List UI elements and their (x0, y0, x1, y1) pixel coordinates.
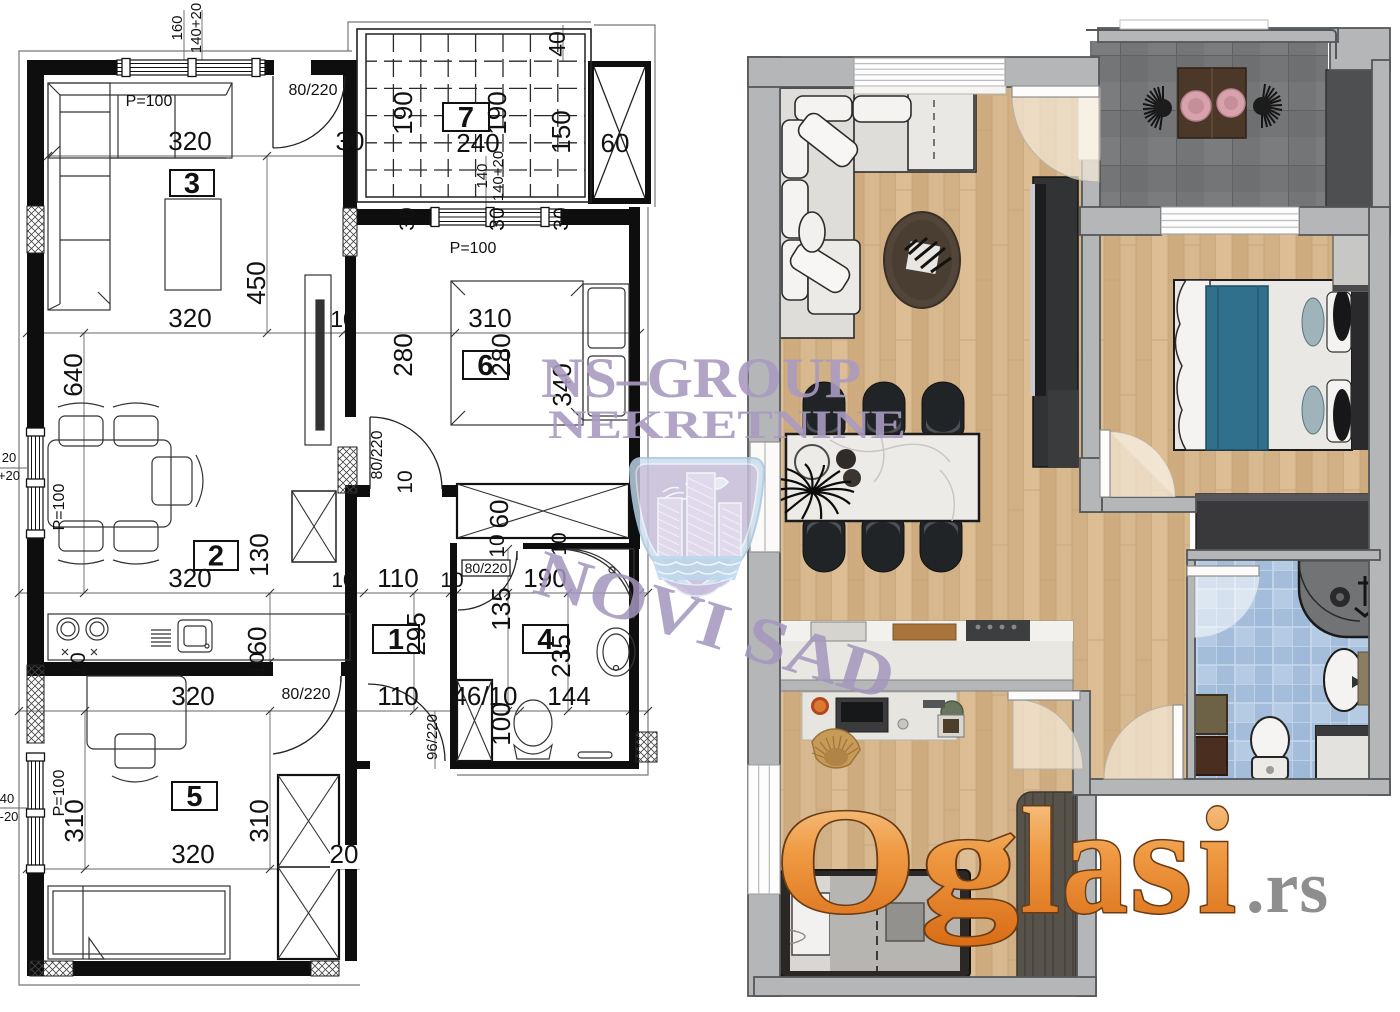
svg-text:144: 144 (547, 681, 590, 711)
svg-text:96/220: 96/220 (424, 714, 441, 760)
svg-text:110: 110 (377, 563, 418, 593)
svg-text:150: 150 (546, 110, 576, 153)
svg-text:190: 190 (388, 91, 418, 134)
svg-text:320: 320 (171, 839, 214, 869)
svg-text:140+20: 140+20 (490, 151, 507, 201)
svg-text:80/220: 80/220 (369, 430, 386, 479)
svg-text:10: 10 (486, 534, 509, 557)
svg-text:O: O (774, 777, 917, 945)
svg-text:.rs: .rs (1246, 847, 1329, 929)
svg-text:310: 310 (468, 303, 511, 333)
svg-text:+20: +20 (0, 468, 20, 483)
svg-text:a: a (1062, 777, 1128, 945)
svg-text:110: 110 (377, 681, 418, 711)
svg-text:P=100: P=100 (450, 240, 497, 257)
svg-text:20: 20 (2, 450, 16, 465)
svg-text:640: 640 (58, 353, 88, 396)
svg-text:g: g (920, 777, 1019, 946)
svg-text:310: 310 (244, 799, 274, 842)
svg-text:320: 320 (168, 563, 211, 593)
svg-text:10: 10 (331, 569, 354, 592)
svg-text:160: 160 (169, 15, 186, 40)
svg-text:10: 10 (440, 569, 463, 592)
svg-text:P=100: P=100 (126, 93, 173, 110)
svg-text:-20: -20 (0, 809, 18, 824)
svg-text:10: 10 (67, 652, 90, 675)
svg-text:80/220: 80/220 (289, 82, 338, 99)
svg-text:40: 40 (0, 791, 14, 806)
svg-text:NS–GROUP: NS–GROUP (541, 347, 861, 410)
svg-text:135: 135 (486, 587, 516, 630)
svg-text:140: 140 (474, 163, 491, 188)
svg-text:i: i (1198, 777, 1236, 945)
svg-text:NEKRETNINE: NEKRETNINE (548, 402, 906, 447)
svg-text:140+20: 140+20 (188, 3, 205, 53)
svg-text:10: 10 (394, 470, 417, 493)
svg-text:60: 60 (242, 627, 272, 656)
svg-text:20: 20 (330, 839, 359, 869)
svg-text:30: 30 (396, 207, 419, 230)
svg-text:10: 10 (330, 306, 356, 332)
svg-text:3: 3 (184, 168, 200, 200)
svg-text:80/220: 80/220 (465, 560, 508, 576)
svg-text:s: s (1130, 777, 1192, 945)
svg-text:80/220: 80/220 (282, 686, 331, 703)
svg-text:60: 60 (484, 500, 514, 529)
svg-text:320: 320 (168, 303, 211, 333)
svg-text:190: 190 (482, 91, 512, 134)
svg-text:10: 10 (246, 652, 269, 675)
svg-text:130: 130 (244, 533, 274, 576)
svg-text:320: 320 (171, 681, 214, 711)
svg-text:P=100: P=100 (51, 484, 68, 531)
svg-text:295: 295 (401, 612, 431, 655)
svg-text:60: 60 (601, 128, 630, 158)
svg-text:100: 100 (486, 702, 516, 745)
svg-text:P=100: P=100 (51, 770, 68, 817)
svg-text:l: l (1020, 777, 1060, 945)
svg-text:280: 280 (388, 333, 418, 376)
svg-text:5: 5 (186, 781, 202, 813)
svg-text:280: 280 (486, 333, 516, 376)
svg-text:30: 30 (486, 207, 509, 230)
svg-text:235: 235 (546, 634, 576, 677)
svg-text:30: 30 (550, 207, 573, 230)
svg-text:40: 40 (544, 31, 570, 57)
svg-text:450: 450 (241, 261, 271, 304)
svg-text:30: 30 (336, 126, 365, 156)
svg-text:320: 320 (168, 126, 211, 156)
